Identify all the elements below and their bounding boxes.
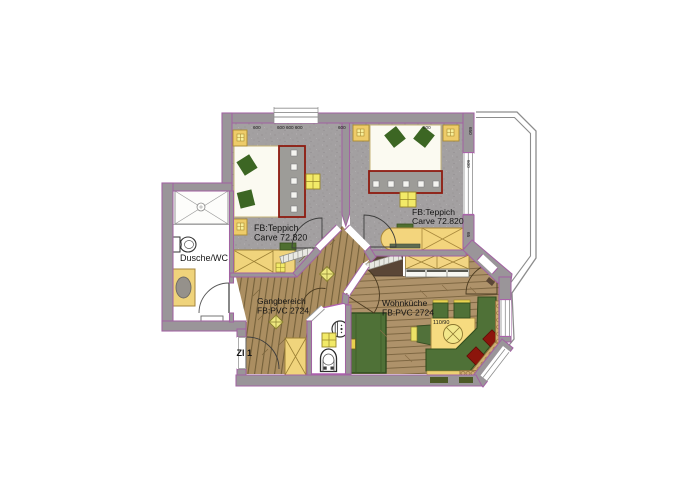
svg-text:Dusche/WC: Dusche/WC bbox=[180, 253, 229, 263]
svg-text:Gangbereich: Gangbereich bbox=[257, 296, 306, 306]
svg-text:600: 600 bbox=[466, 160, 471, 168]
svg-text:FB:PVC 2724: FB:PVC 2724 bbox=[257, 306, 309, 316]
svg-text:600: 600 bbox=[253, 125, 261, 130]
svg-text:ZI 1: ZI 1 bbox=[237, 348, 253, 358]
svg-text:FB:Teppich: FB:Teppich bbox=[254, 223, 298, 233]
svg-text:600 600 600: 600 600 600 bbox=[277, 125, 303, 130]
svg-text:Wohnküche: Wohnküche bbox=[382, 298, 427, 308]
svg-text:110/90: 110/90 bbox=[433, 320, 449, 326]
svg-text:650: 650 bbox=[468, 127, 473, 135]
svg-text:FB:PVC 2724: FB:PVC 2724 bbox=[382, 308, 434, 318]
svg-text:600: 600 bbox=[423, 125, 431, 130]
svg-text:600: 600 bbox=[338, 125, 346, 130]
svg-text:Carve 72.820: Carve 72.820 bbox=[254, 233, 307, 243]
svg-text:Carve 72.820: Carve 72.820 bbox=[412, 216, 464, 226]
svg-text:65: 65 bbox=[466, 232, 471, 238]
